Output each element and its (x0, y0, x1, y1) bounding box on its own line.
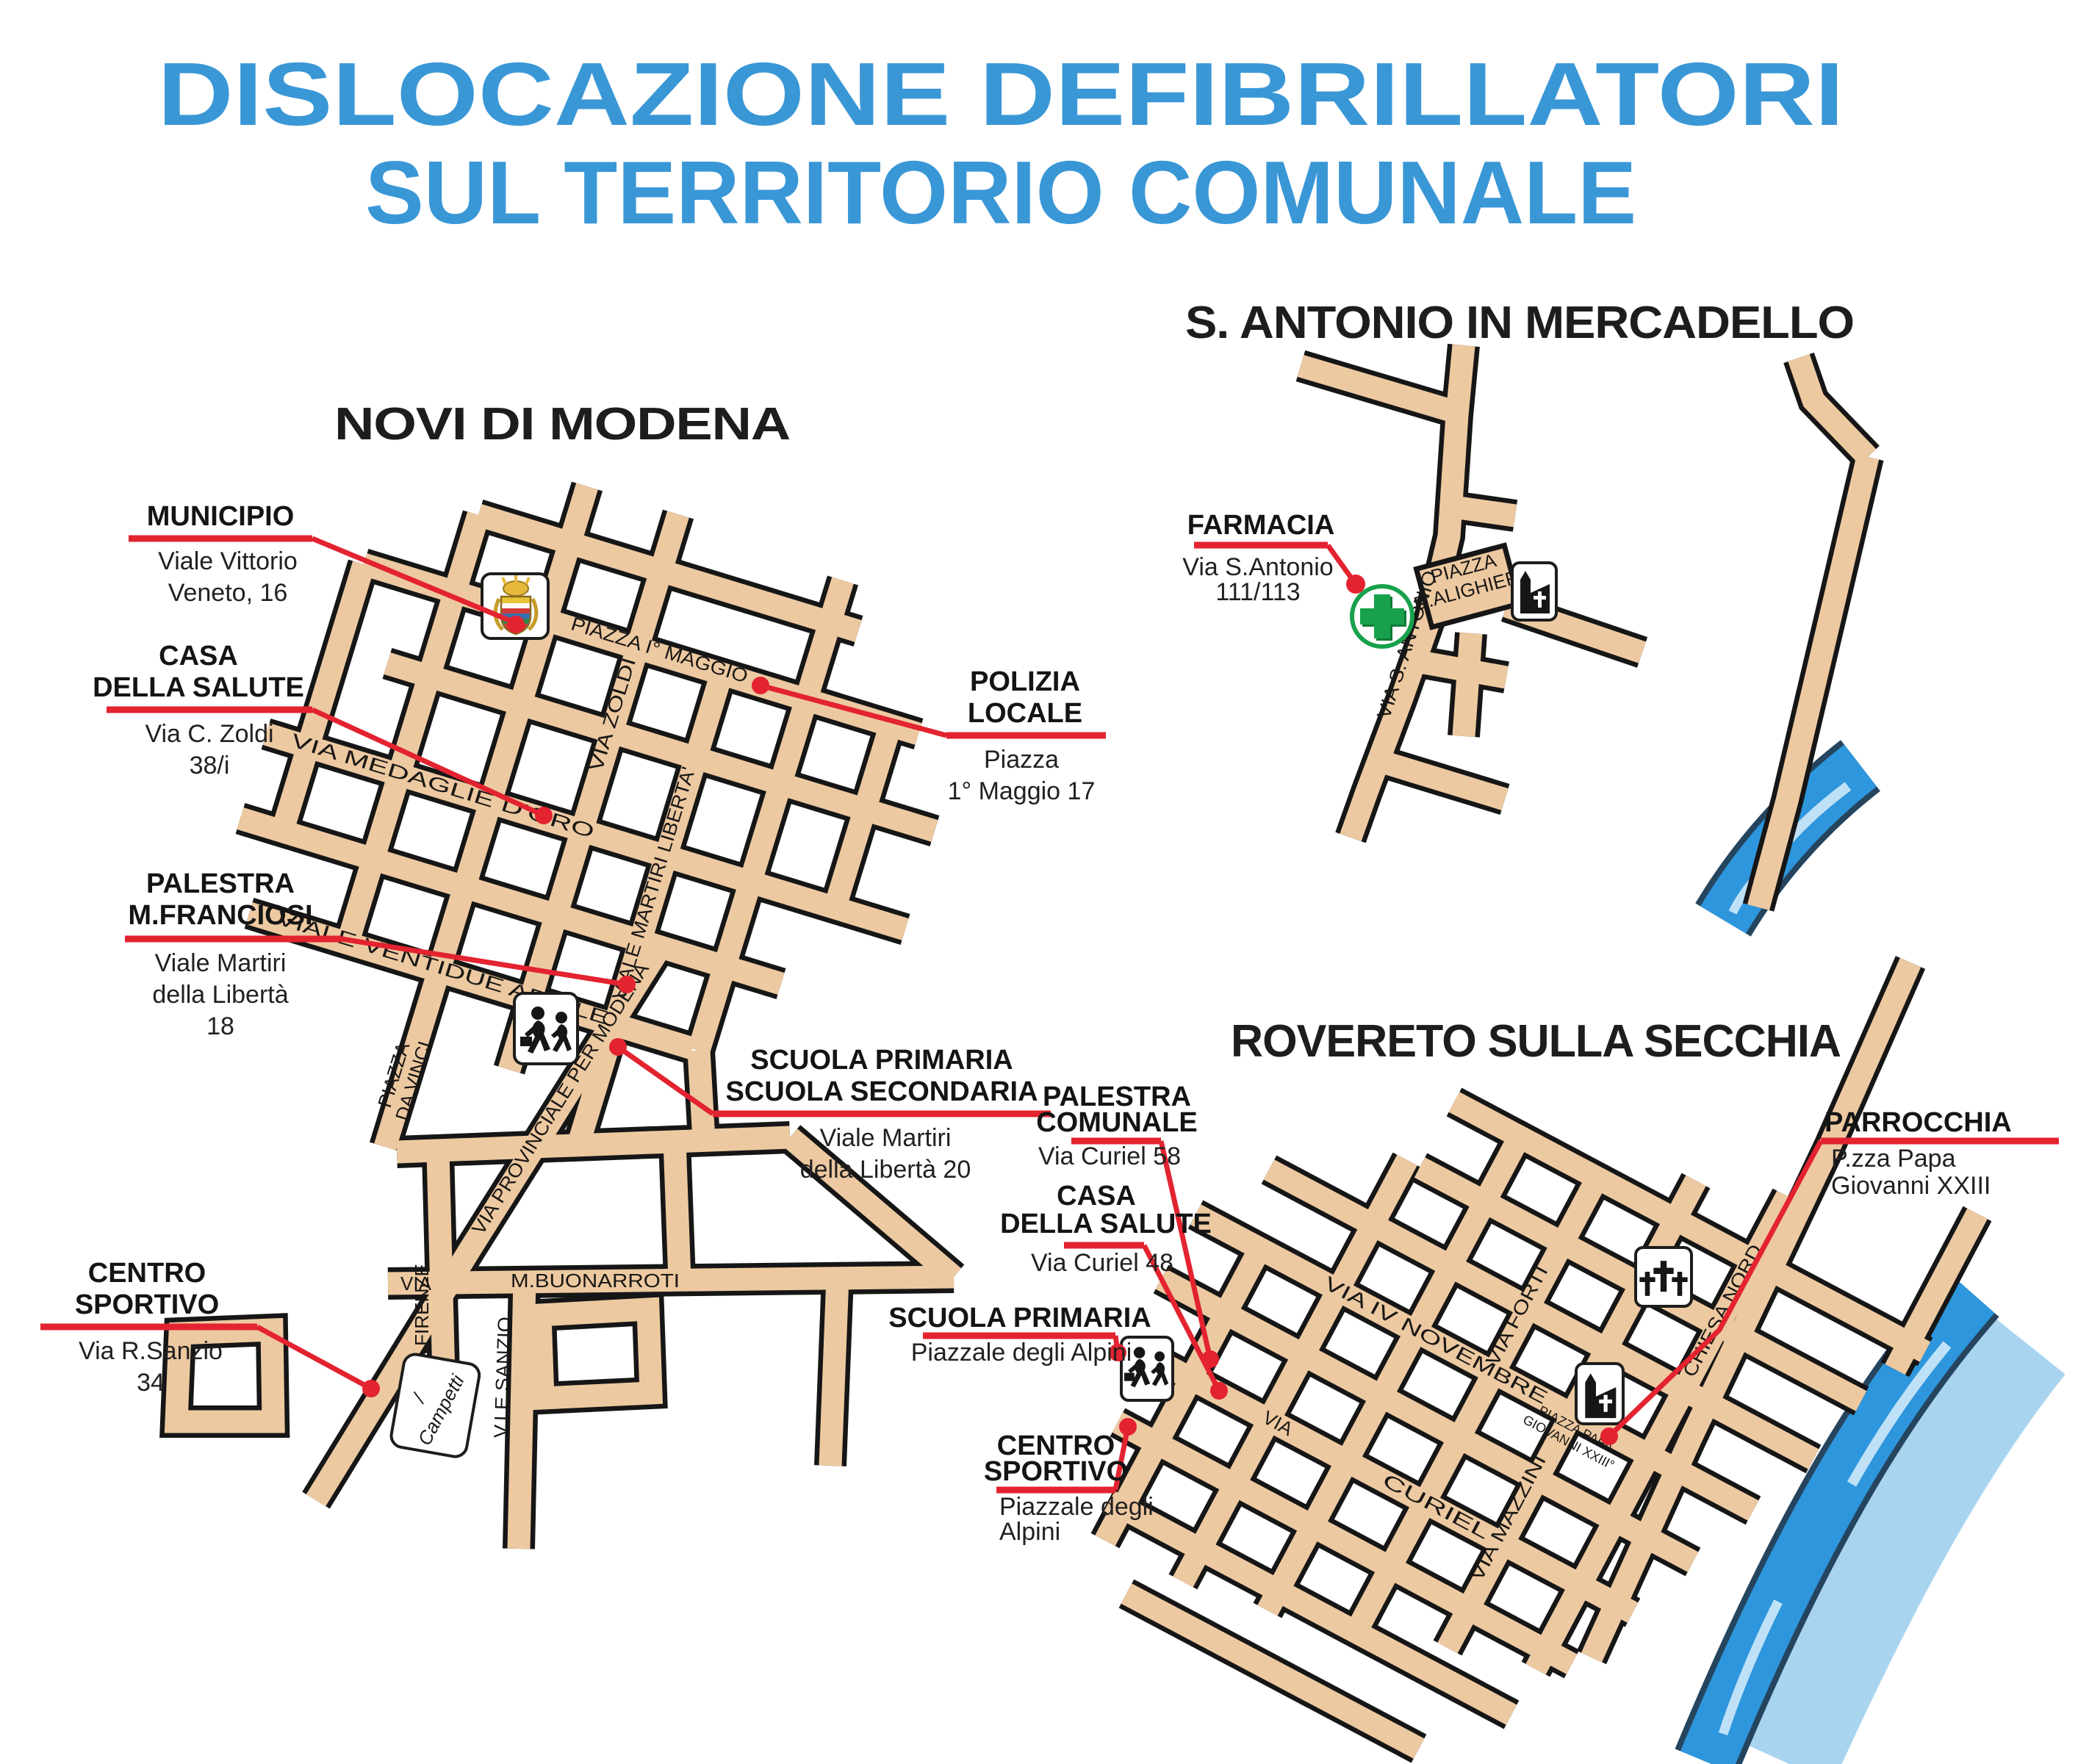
site-address: Piazzale degli Alpini (911, 1339, 1132, 1367)
road-segment (1453, 507, 1515, 516)
site-label-palestra-comunale: PALESTRA COMUNALE Via Curiel 58 (1036, 1081, 1198, 1170)
site-address: Via Curiel 58 (1038, 1142, 1181, 1170)
campetti-sign: / Campetti (388, 1353, 481, 1458)
site-address: Alpini (999, 1518, 1060, 1546)
mercadello-map-title: S. ANTONIO IN MERCADELLO (1185, 298, 1854, 348)
callout-dot (1346, 575, 1365, 594)
site-label-casa-della-salute-rovereto: CASA DELLA SALUTE Via Curiel 48 (1000, 1181, 1212, 1277)
callout-dot (507, 616, 525, 633)
site-label-municipio: MUNICIPIO Viale Vittorio Veneto, 16 (147, 501, 298, 607)
mercadello-map: S. ANTONIO IN MERCADELLO (1185, 298, 1868, 920)
site-name: PALESTRA (146, 868, 295, 899)
site-address: della Libertà (152, 981, 288, 1009)
site-address: Viale Martiri (155, 949, 287, 977)
site-name: COMUNALE (1036, 1107, 1198, 1138)
novi-map-title: NOVI DI MODENA (334, 399, 790, 450)
site-name: POLIZIA (970, 666, 1080, 697)
site-address: della Libertà 20 (800, 1156, 971, 1184)
site-address: P.zza Papa (1831, 1145, 1956, 1173)
road-segment (830, 1277, 838, 1466)
site-address: 111/113 (1215, 578, 1300, 606)
site-name: SCUOLA PRIMARIA (750, 1045, 1013, 1076)
road-segment (1464, 633, 1471, 736)
street-label-vle-sanzio: V.LE SANZIO (489, 1317, 516, 1439)
site-address: 18 (206, 1012, 234, 1040)
site-address: 34 (137, 1369, 165, 1397)
site-address: Giovanni XXIII (1831, 1172, 1991, 1200)
site-name: DELLA SALUTE (93, 672, 304, 703)
secchia-river-rovereto (1706, 1295, 2028, 1764)
callout-dot (1600, 1428, 1618, 1445)
site-name: PARROCCHIA (1824, 1107, 2012, 1138)
pharmacy-cross-icon (1352, 586, 1412, 647)
church-icon-rovereto (1576, 1364, 1623, 1424)
site-address: 38/i (190, 752, 230, 780)
rovereto-map-title: ROVERETO SULLA SECCHIA (1231, 1016, 1841, 1067)
site-name: MUNICIPIO (147, 501, 295, 532)
callout-dot (1119, 1418, 1137, 1436)
site-name: SPORTIVO (75, 1289, 219, 1320)
site-name: CENTRO (88, 1258, 206, 1289)
cemetery-icon (1636, 1248, 1691, 1306)
site-name: SCUOLA SECONDARIA (725, 1076, 1038, 1107)
callout-dot (752, 677, 769, 694)
church-icon-mercadello (1512, 563, 1556, 620)
site-address: Via C. Zoldi (145, 720, 273, 748)
road-segment (519, 1278, 525, 1549)
site-address: Viale Martiri (820, 1124, 952, 1152)
callout-dot (535, 807, 553, 824)
road-segment (675, 1140, 680, 1280)
poster-page: DISLOCAZIONE DEFIBRILLATORI SUL TERRITOR… (0, 0, 2078, 1764)
site-label-palestra-franciosi: PALESTRA M.FRANCIOSI Viale Martiri della… (128, 868, 312, 1040)
site-label-farmacia: FARMACIA Via S.Antonio 111/113 (1182, 510, 1334, 606)
site-name: SPORTIVO (984, 1456, 1128, 1487)
road-segment (699, 1051, 704, 1140)
site-name: M.FRANCIOSI (128, 900, 312, 931)
callout-dot (609, 1038, 627, 1056)
callout-dot (362, 1380, 380, 1397)
site-address: 1° Maggio 17 (948, 777, 1096, 805)
site-name: LOCALE (968, 698, 1082, 729)
road-segment (240, 818, 781, 984)
site-address: Veneto, 16 (168, 579, 288, 607)
site-address: Viale Vittorio (158, 547, 298, 575)
rovereto-map: ROVERETO SULLA SECCHIA (1105, 962, 2028, 1764)
page-title-line1: DISLOCAZIONE DEFIBRILLATORI (158, 44, 1844, 144)
site-name: DELLA SALUTE (1000, 1209, 1212, 1239)
site-address: Via Curiel 48 (1031, 1249, 1173, 1277)
callout-dot (1210, 1382, 1228, 1400)
page-title: DISLOCAZIONE DEFIBRILLATORI SUL TERRITOR… (158, 44, 1844, 242)
site-address: Piazza (984, 746, 1059, 774)
page-title-line2: SUL TERRITORIO COMUNALE (365, 143, 1636, 242)
school-crossing-icon (514, 993, 578, 1064)
street-label-via-medaglie-doro: VIA MEDAGLIE D'ORO (289, 729, 597, 842)
site-address: Via R.Sanzio (79, 1337, 223, 1365)
site-address: Piazzale degli (999, 1493, 1154, 1521)
site-name: CASA (1057, 1181, 1136, 1212)
defibrillator-map-poster: DISLOCAZIONE DEFIBRILLATORI SUL TERRITOR… (0, 0, 2078, 1764)
site-address: Via S.Antonio (1182, 553, 1333, 581)
site-name: FARMACIA (1187, 510, 1335, 541)
street-label-buonarroti: M.BUONARROTI (511, 1270, 680, 1292)
site-label-parrocchia: PARROCCHIA P.zza Papa Giovanni XXIII (1824, 1107, 2012, 1200)
site-name: CASA (159, 641, 238, 672)
road-segment (397, 1137, 790, 1152)
site-name: SCUOLA PRIMARIA (888, 1303, 1151, 1333)
callout-dot (618, 976, 636, 993)
